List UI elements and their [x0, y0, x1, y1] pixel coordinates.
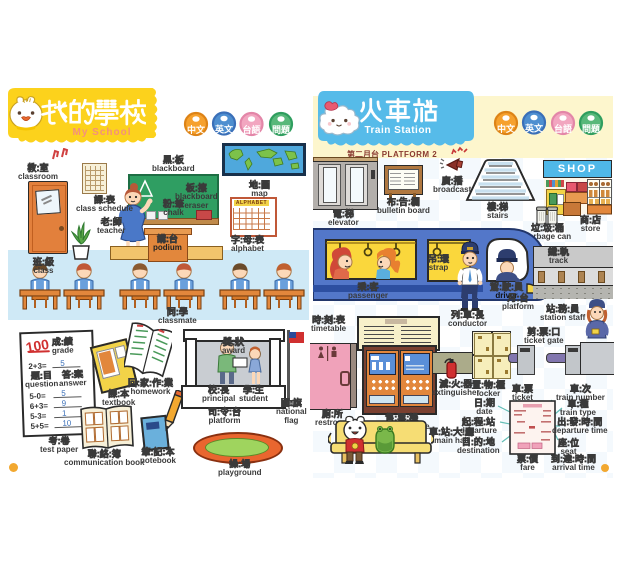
svg-text:問題: 問題 — [582, 124, 601, 134]
svg-text:中文: 中文 — [187, 124, 206, 135]
svg-text:台語: 台語 — [242, 124, 260, 135]
svg-text:英文: 英文 — [214, 124, 234, 135]
svg-text:英文: 英文 — [524, 123, 544, 134]
svg-text:台語: 台語 — [554, 123, 572, 134]
svg-text:中文: 中文 — [497, 123, 516, 134]
svg-text:問題: 問題 — [272, 125, 291, 135]
